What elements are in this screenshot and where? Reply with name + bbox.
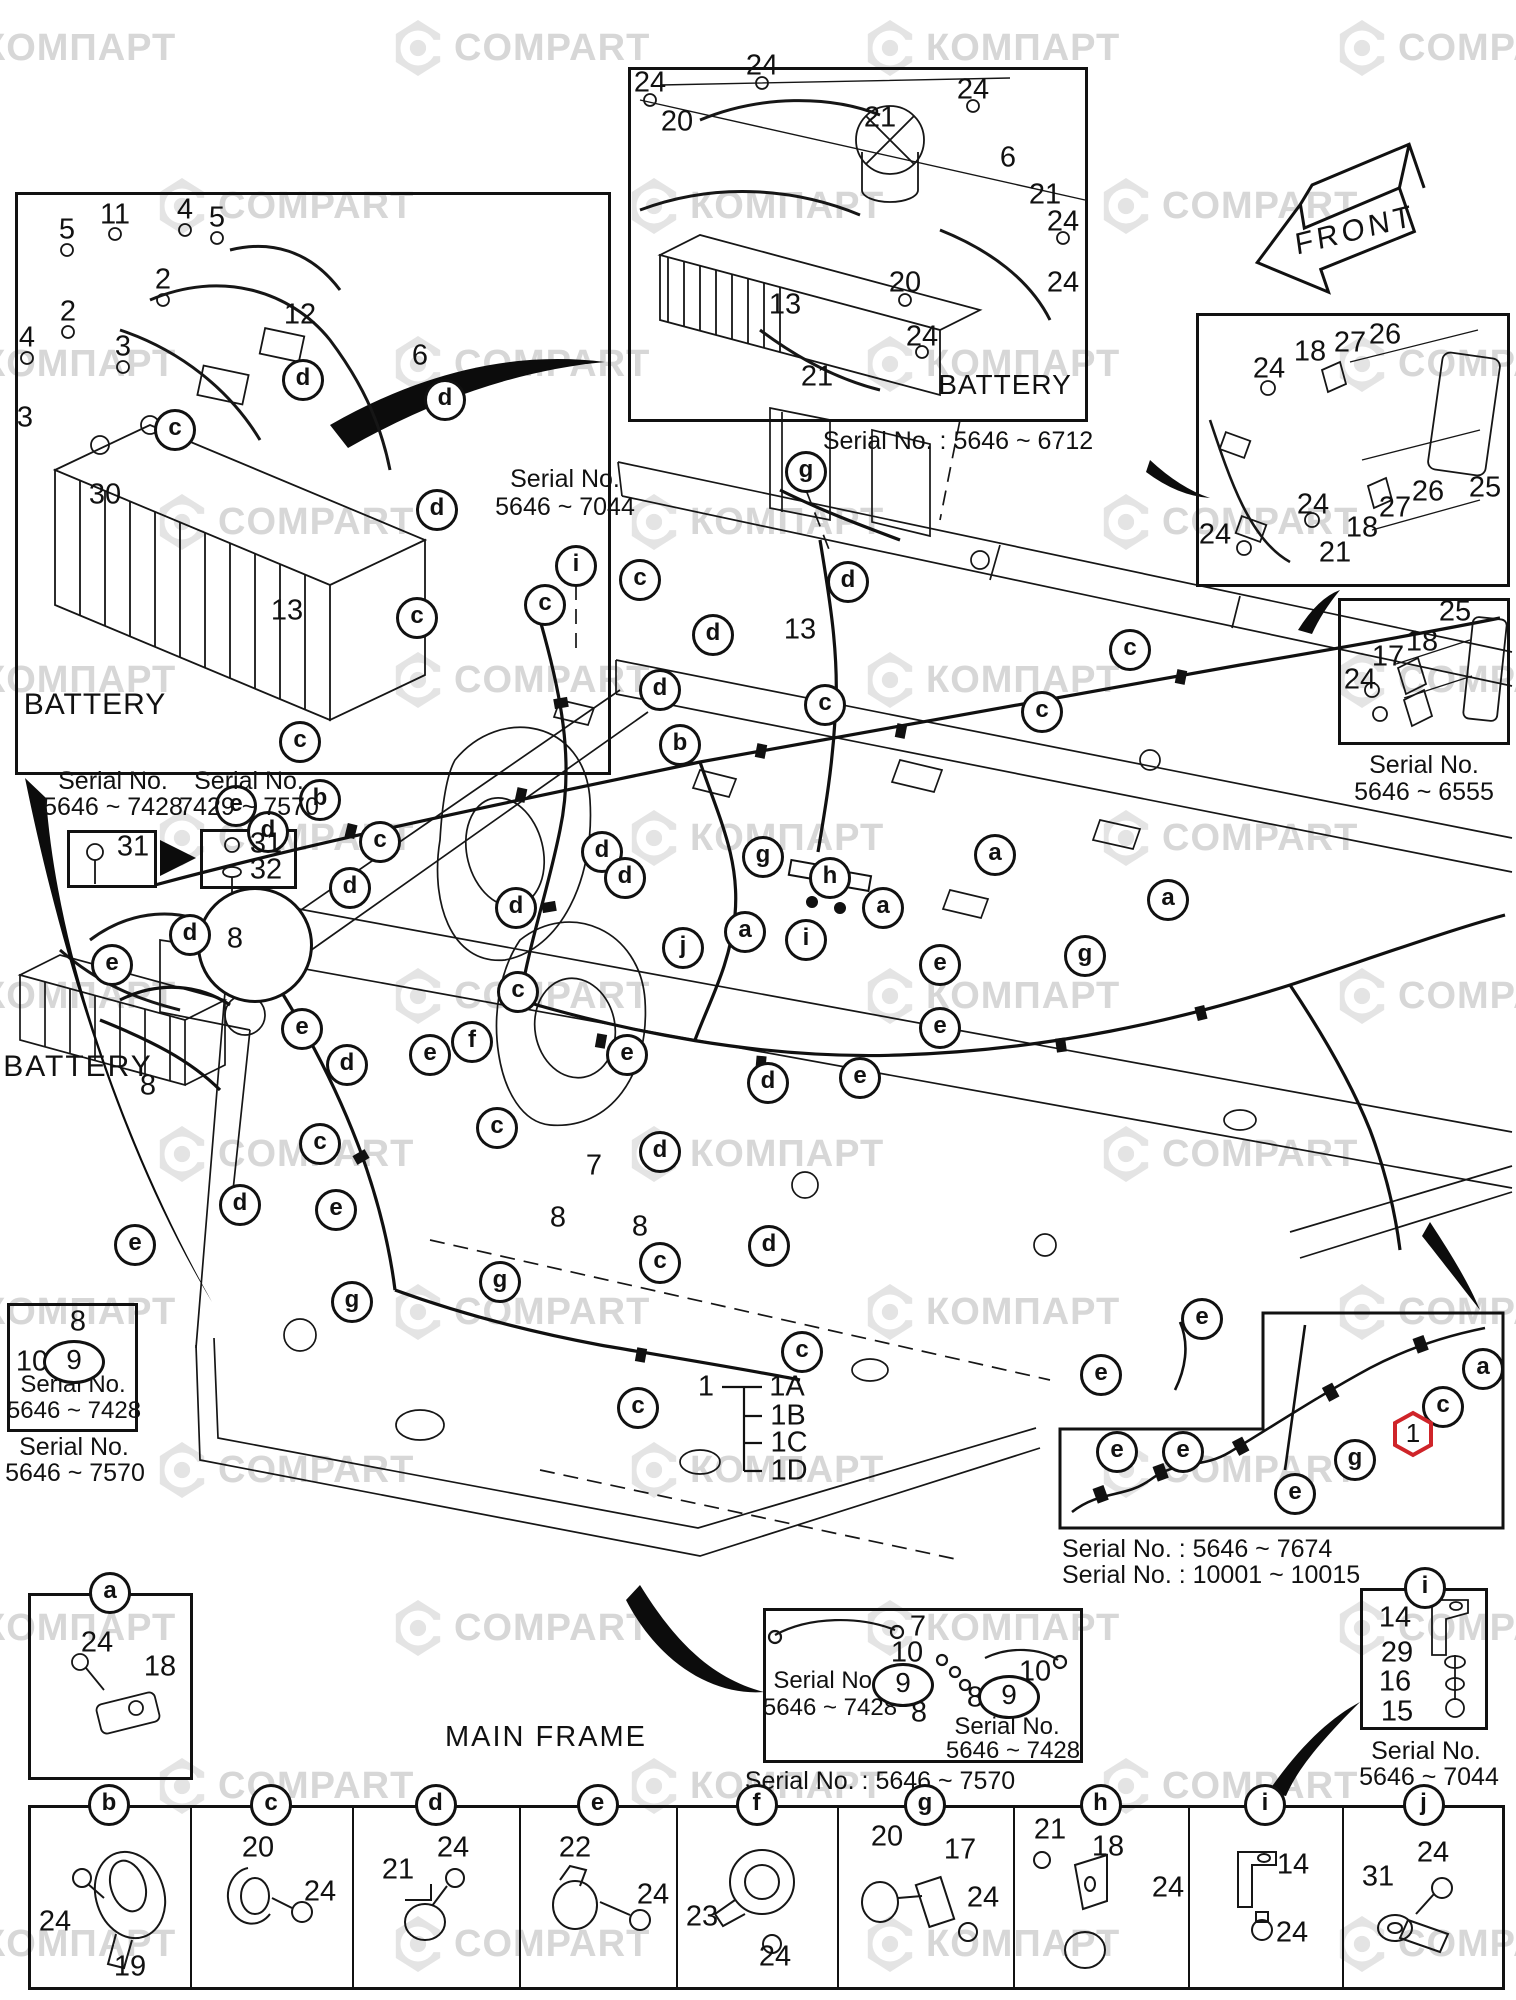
callout-letter-d: d [827,561,869,603]
callout-letter-e: e [409,1034,451,1076]
callout-letter-h: h [809,857,851,899]
callout-letter-c: c [299,1123,341,1165]
callout-number-29: 29 [1381,1639,1413,1668]
callout-ref-9: 9 [872,1663,934,1707]
callout-letter-d: d [329,867,371,909]
legend-number-1: 1 [698,1373,714,1402]
serial-label: Serial No. [19,1434,129,1462]
callout-letter-d: d [747,1062,789,1104]
callout-number-26: 26 [1369,321,1401,350]
callout-number-6: 6 [1000,144,1016,173]
callout-letter-c: c [639,1242,681,1284]
callout-number-20: 20 [242,1834,274,1863]
callout-number-22: 22 [559,1834,591,1863]
table-letter-e: e [577,1784,619,1826]
callout-letter-d: d [416,489,458,531]
callout-letter-i: i [555,545,597,587]
serial-label: Serial No. [773,1668,878,1694]
serial-label: Serial No. : 5646 ~ 7674 [1062,1536,1332,1564]
callout-number-24: 24 [437,1834,469,1863]
table-letter-b: b [88,1784,130,1826]
callout-number-24: 24 [1297,491,1329,520]
table-letter-i: i [1244,1784,1286,1826]
callout-number-19: 19 [114,1953,146,1982]
callout-letter-e: e [1181,1298,1223,1340]
callout-number-8: 8 [70,1308,86,1337]
callout-letter-c: c [619,559,661,601]
callout-number-15: 15 [1381,1698,1413,1727]
callout-letter-a: a [89,1572,131,1614]
table-letter-c: c [250,1784,292,1826]
callout-number-23: 23 [686,1903,718,1932]
table-letter-g: g [904,1784,946,1826]
callout-letter-d: d [639,1131,681,1173]
callout-letter-g: g [785,451,827,493]
callout-letter-c: c [1109,629,1151,671]
table-letter-h: h [1080,1784,1122,1826]
callout-number-27: 27 [1334,329,1366,358]
callout-letter-d: d [495,887,537,929]
callout-number-27: 27 [1379,494,1411,523]
callout-number-24: 24 [906,323,938,352]
callout-number-24: 24 [637,1881,669,1910]
legend-item-1C: 1C [770,1429,807,1458]
callout-number-2: 2 [60,298,76,327]
callout-letter-g: g [1064,935,1106,977]
callout-number-24: 24 [1276,1919,1308,1948]
callout-letter-c: c [804,684,846,726]
callout-letter-e: e [114,1224,156,1266]
callout-number-4: 4 [19,324,35,353]
callout-letter-e: e [91,944,133,986]
callout-number-14: 14 [1379,1604,1411,1633]
callout-letter-b: b [659,724,701,766]
battery-mid-left-label: BATTERY [3,1050,153,1083]
serial-label: Serial No. : 5646 ~ 7570 [745,1768,1015,1796]
callout-number-30: 30 [89,481,121,510]
callout-number-20: 20 [871,1823,903,1852]
callout-number-7: 7 [586,1152,602,1181]
callout-number-20: 20 [661,108,693,137]
callout-number-12: 12 [284,301,316,330]
callout-number-24: 24 [81,1629,113,1658]
serial-label: Serial No. : 10001 ~ 10015 [1062,1562,1360,1590]
callout-letter-c: c [279,721,321,763]
callout-number-21: 21 [864,104,896,133]
callout-letter-a: a [1147,879,1189,921]
callout-number-8: 8 [140,1072,156,1101]
callout-number-24: 24 [746,52,778,81]
callout-letter-a: a [1462,1348,1504,1390]
callout-number-17: 17 [1372,643,1404,672]
callout-letter-c: c [359,821,401,863]
callout-number-24: 24 [1199,521,1231,550]
callout-number-13: 13 [784,616,816,645]
callout-letter-a: a [724,911,766,953]
callout-number-24: 24 [967,1884,999,1913]
legend-item-1D: 1D [770,1457,807,1486]
main-frame-label: MAIN FRAME [445,1722,647,1754]
callout-number-2: 2 [155,266,171,295]
serial-label: 5646 ~ 6555 [1354,779,1494,807]
callout-letter-c: c [476,1107,518,1149]
callout-number-13: 13 [769,291,801,320]
callout-letter-e: e [1080,1354,1122,1396]
callout-letter-c: c [396,597,438,639]
callout-letter-f: f [451,1021,493,1063]
callout-ref-9: 9 [978,1675,1040,1719]
callout-number-21: 21 [382,1856,414,1885]
callout-letter-i: i [1404,1567,1446,1609]
callout-letter-c: c [617,1387,659,1429]
callout-number-3: 3 [115,333,131,362]
callout-letter-d: d [169,914,211,956]
callout-number-21: 21 [1034,1816,1066,1845]
callout-number-14: 14 [1277,1851,1309,1880]
table-letter-d: d [415,1784,457,1826]
callout-number-24: 24 [634,69,666,98]
callout-letter-d: d [326,1044,368,1086]
callout-letter-a: a [974,834,1016,876]
callout-number-24: 24 [1253,355,1285,384]
table-letter-j: j [1403,1784,1445,1826]
serial-label: 5646 ~ 7570 [5,1460,145,1488]
callout-number-24: 24 [1344,666,1376,695]
callout-number-3: 3 [17,404,33,433]
callout-letter-d: d [424,379,466,421]
callout-letter-e: e [1274,1473,1316,1515]
callout-number-25: 25 [1469,474,1501,503]
serial-label: BATTERY [24,688,167,721]
callout-letter-d: d [692,614,734,656]
callout-letter-e: e [1162,1431,1204,1473]
callout-ref-9: 9 [43,1340,105,1384]
callout-number-24: 24 [1047,208,1079,237]
serial-note-7044: Serial No. [510,466,620,494]
callout-letter-g: g [1334,1439,1376,1481]
table-letter-f: f [736,1784,778,1826]
callout-number-25: 25 [1439,598,1471,627]
callout-number-24: 24 [304,1878,336,1907]
callout-letter-g: g [742,836,784,878]
callouts-layer: BATTERYMAIN FRAMESerial No.5646 ~ 704413… [0,0,1516,2000]
callout-number-5: 5 [59,216,75,245]
callout-number-13: 13 [271,597,303,626]
serial-label: Serial No. [58,768,168,796]
callout-number-21: 21 [801,363,833,392]
callout-letter-g: g [479,1261,521,1303]
callout-letter-c: c [524,584,566,626]
callout-letter-g: g [331,1281,373,1323]
callout-number-18: 18 [1406,628,1438,657]
callout-letter-c: c [154,409,196,451]
callout-letter-c: c [497,971,539,1013]
callout-number-8: 8 [632,1213,648,1242]
callout-number-24: 24 [1047,269,1079,298]
serial-label: Serial No. [1369,752,1479,780]
callout-number-31: 31 [1362,1863,1394,1892]
highlighted-part-marker[interactable]: 1 [1391,1410,1435,1458]
callout-number-32: 32 [250,856,282,885]
serial-label: 5646 ~ 7428 [946,1738,1080,1764]
callout-number-11: 11 [100,201,130,230]
callout-number-24: 24 [39,1908,71,1937]
callout-number-24: 24 [759,1943,791,1972]
callout-number-6: 6 [412,342,428,371]
callout-number-18: 18 [1294,338,1326,367]
callout-number-16: 16 [1379,1668,1411,1697]
callout-letter-e: e [919,1007,961,1049]
callout-number-21: 21 [1319,539,1351,568]
callout-letter-d: d [748,1225,790,1267]
serial-label: 5646 ~ 7428 [7,1398,141,1424]
callout-number-24: 24 [957,76,989,105]
callout-number-18: 18 [144,1653,176,1682]
serial-label: Serial No. [1371,1738,1481,1766]
callout-letter-e: e [606,1034,648,1076]
callout-letter-j: j [662,927,704,969]
callout-letter-d: d [604,857,646,899]
callout-number-24: 24 [1152,1874,1184,1903]
callout-number-17: 17 [944,1836,976,1865]
legend-item-1A: 1A [769,1373,804,1402]
callout-letter-e: e [919,944,961,986]
callout-letter-a: a [862,887,904,929]
callout-letter-c: c [1021,691,1063,733]
callout-number-5: 5 [209,204,225,233]
serial-label: BATTERY [938,370,1072,401]
serial-label: 7429 ~ 7570 [179,794,319,822]
callout-letter-d: d [282,359,324,401]
serial-label: Serial No. [194,768,304,796]
callout-letter-i: i [785,919,827,961]
callout-letter-e: e [1096,1431,1138,1473]
callout-number-26: 26 [1412,478,1444,507]
callout-number-8: 8 [550,1204,566,1233]
callout-letter-e: e [281,1008,323,1050]
callout-number-24: 24 [1417,1839,1449,1868]
serial-note-7044: 5646 ~ 7044 [495,494,635,522]
callout-letter-e: e [839,1057,881,1099]
callout-number-8: 8 [227,925,243,954]
callout-number-31: 31 [117,833,149,862]
callout-letter-c: c [781,1331,823,1373]
diagram-page: КОМПАРТCOMPARTКОМПАРТCOMPARTCOMPARTКОМПА… [0,0,1516,2000]
serial-label: 5646 ~ 7428 [763,1695,897,1721]
serial-label: Serial No. : 5646 ~ 6712 [823,428,1093,456]
callout-number-18: 18 [1092,1833,1124,1862]
callout-letter-e: e [315,1189,357,1231]
callout-letter-d: d [219,1184,261,1226]
callout-number-20: 20 [889,269,921,298]
callout-letter-d: d [639,669,681,711]
serial-label: 5646 ~ 7428 [43,794,183,822]
callout-number-4: 4 [177,196,193,225]
